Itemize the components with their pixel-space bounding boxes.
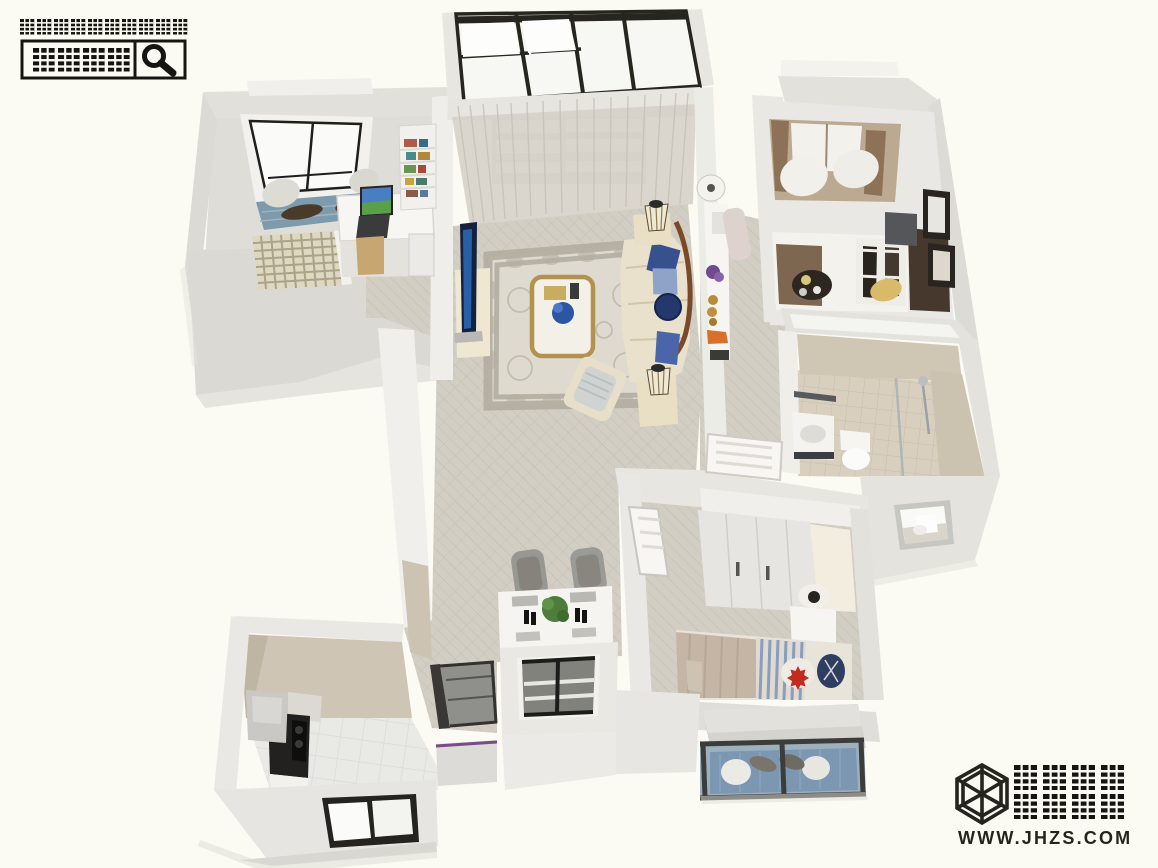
svg-text:WWW.JHZS.COM: WWW.JHZS.COM <box>958 828 1132 848</box>
